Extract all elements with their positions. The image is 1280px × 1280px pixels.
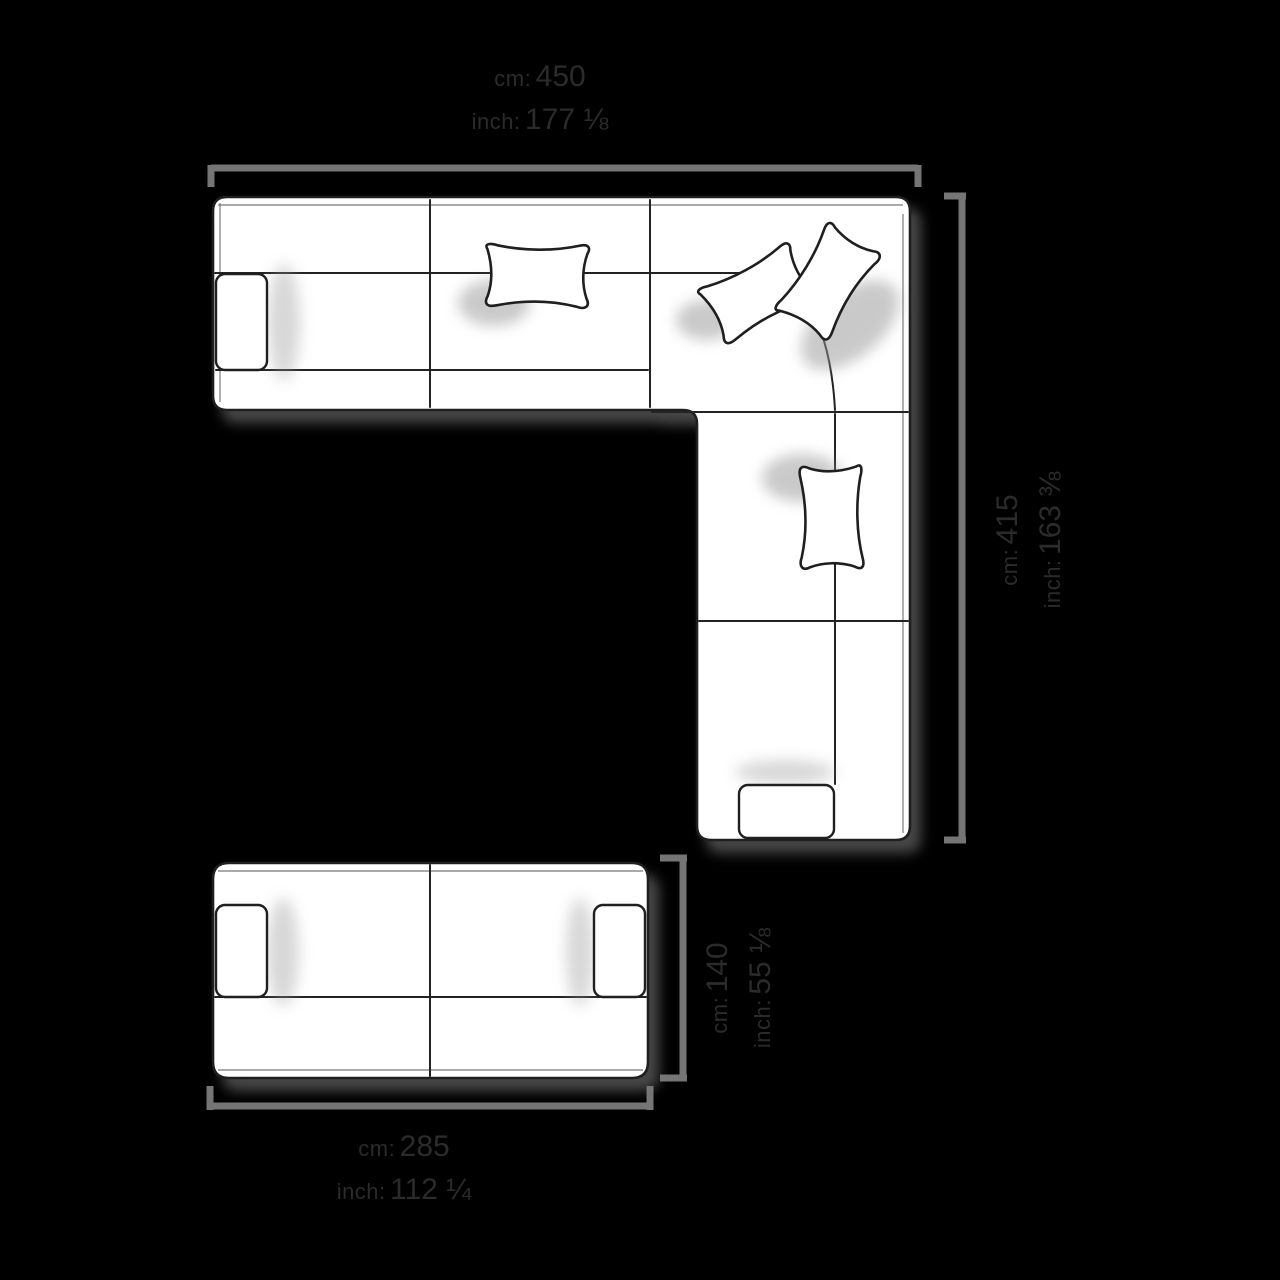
inch-unit: inch: (1040, 559, 1065, 608)
inch-line: inch: 177 ⅛ (472, 101, 609, 144)
two-seater-sofa-top-view (213, 863, 648, 1078)
cm-line: cm: 140 (699, 928, 742, 1048)
dimension-line-sofa-width (210, 1086, 650, 1110)
cm-value: 140 (701, 942, 734, 992)
diagram-canvas: cm: 450 inch: 177 ⅛ cm: 415 inch: 163 ⅜ … (0, 0, 1280, 1280)
inch-unit: inch: (472, 109, 521, 134)
inch-unit: inch: (750, 999, 775, 1048)
sectional-width-label: cm: 450 inch: 177 ⅛ (472, 58, 609, 144)
sofa-width-label: cm: 285 inch: 112 ¼ (337, 1128, 472, 1214)
cm-unit: cm: (997, 549, 1022, 586)
cm-line: cm: 285 (337, 1128, 472, 1171)
inch-value: 112 ¼ (390, 1173, 471, 1206)
cm-unit: cm: (358, 1136, 395, 1161)
cm-value: 285 (400, 1130, 450, 1163)
dimension-line-sectional-depth (944, 196, 966, 840)
armrest (594, 905, 645, 997)
dimension-line-sectional-width (211, 165, 918, 187)
sectional-depth-label: cm: 415 inch: 163 ⅜ (989, 472, 1075, 609)
inch-value: 55 ⅛ (744, 928, 777, 995)
cm-line: cm: 415 (989, 472, 1032, 609)
back-pillow (485, 244, 589, 309)
dimension-line-sofa-depth (660, 858, 687, 1078)
inch-line: inch: 163 ⅜ (1032, 472, 1075, 609)
armrest (739, 785, 834, 838)
inch-value: 177 ⅛ (525, 103, 608, 136)
inch-value: 163 ⅜ (1034, 472, 1067, 555)
armrest (216, 905, 267, 997)
armrest (216, 274, 267, 370)
inch-line: inch: 55 ⅛ (742, 928, 785, 1048)
cm-value: 415 (991, 494, 1024, 544)
cm-unit: cm: (494, 66, 531, 91)
cm-value: 450 (536, 60, 586, 93)
cm-unit: cm: (707, 997, 732, 1034)
cm-line: cm: 450 (472, 58, 609, 101)
corner-sectional-sofa-top-view (213, 197, 915, 840)
inch-unit: inch: (337, 1179, 386, 1204)
back-pillow (799, 465, 864, 569)
sofa-depth-label: cm: 140 inch: 55 ⅛ (699, 928, 785, 1048)
sofa-dimension-diagram (0, 0, 1280, 1280)
inch-line: inch: 112 ¼ (337, 1171, 472, 1214)
